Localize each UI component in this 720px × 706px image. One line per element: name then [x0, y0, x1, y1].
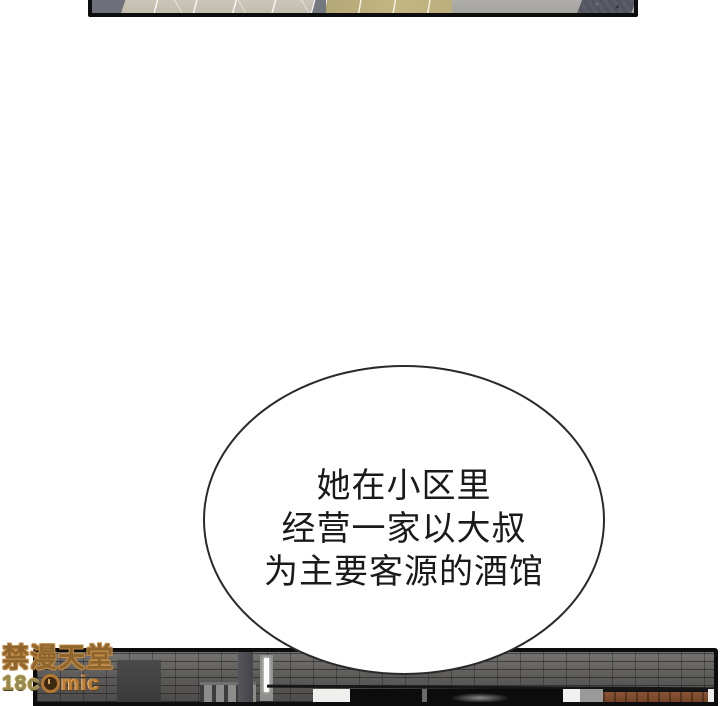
- wall-pillar: [238, 652, 253, 704]
- top-comic-panel: [88, 0, 638, 17]
- site-watermark: 禁漫天堂 18c mic: [2, 645, 114, 694]
- dark-doorway: [117, 660, 161, 704]
- shopfront-white-wall: [313, 689, 350, 704]
- interior-light-glow: [450, 693, 510, 703]
- floor-tiles-khaki: [326, 0, 454, 13]
- watermark-title: 禁漫天堂: [2, 645, 114, 672]
- watermark-logo-suffix: mic: [61, 673, 100, 694]
- white-strip: [708, 689, 718, 704]
- door-frame-white: [563, 689, 580, 704]
- slate-shape-left: [88, 0, 126, 13]
- dark-speckled-shape: [577, 0, 636, 13]
- floor-tiles-beige: [118, 0, 318, 13]
- bubble-text-line-3: 为主要客源的酒馆: [264, 551, 544, 594]
- shop-window-dark: [350, 689, 563, 704]
- watermark-logo: 18c mic: [2, 673, 114, 694]
- watermark-logo-prefix: 18c: [2, 673, 40, 694]
- watch-icon: [41, 674, 60, 693]
- shopfront-row: [313, 689, 718, 704]
- wall-gray-strip: [580, 689, 603, 704]
- speech-bubble: 她在小区里 经营一家以大叔 为主要客源的酒馆: [203, 365, 605, 675]
- gray-floor-area: [452, 0, 584, 13]
- bubble-text-line-2: 经营一家以大叔: [282, 508, 527, 551]
- bubble-text-line-1: 她在小区里: [317, 465, 492, 508]
- lamp-post: [260, 655, 273, 701]
- window-pole: [422, 689, 427, 704]
- wooden-sign: [603, 689, 708, 704]
